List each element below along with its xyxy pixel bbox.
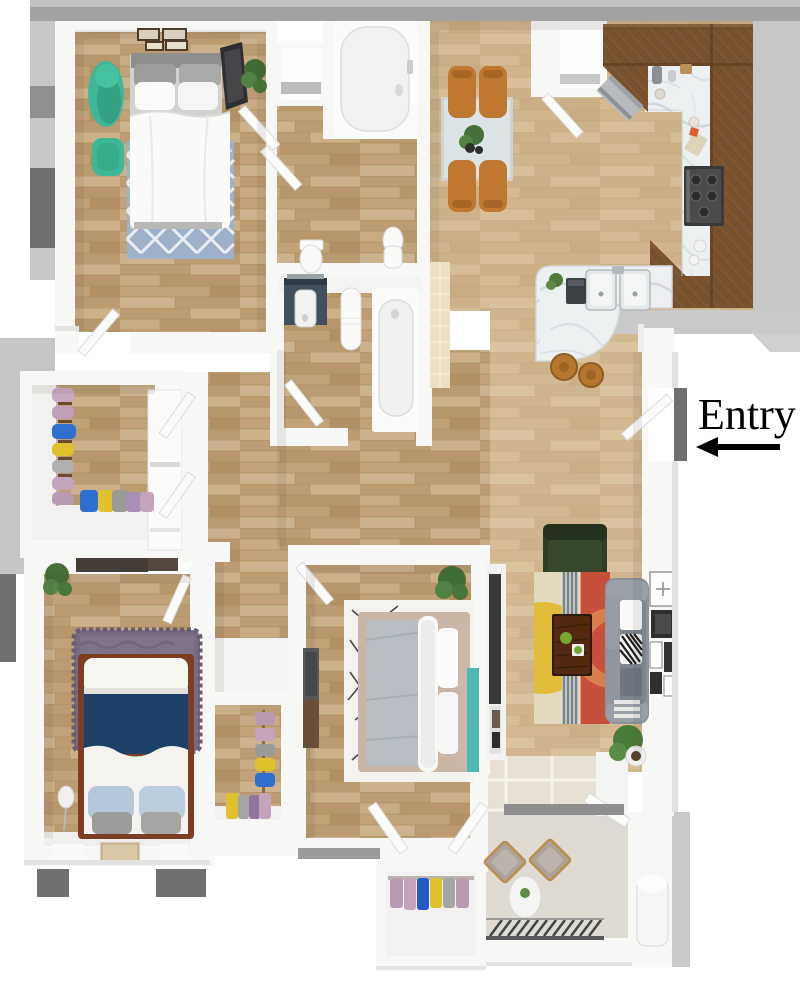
svg-text:Entry: Entry <box>698 390 796 439</box>
